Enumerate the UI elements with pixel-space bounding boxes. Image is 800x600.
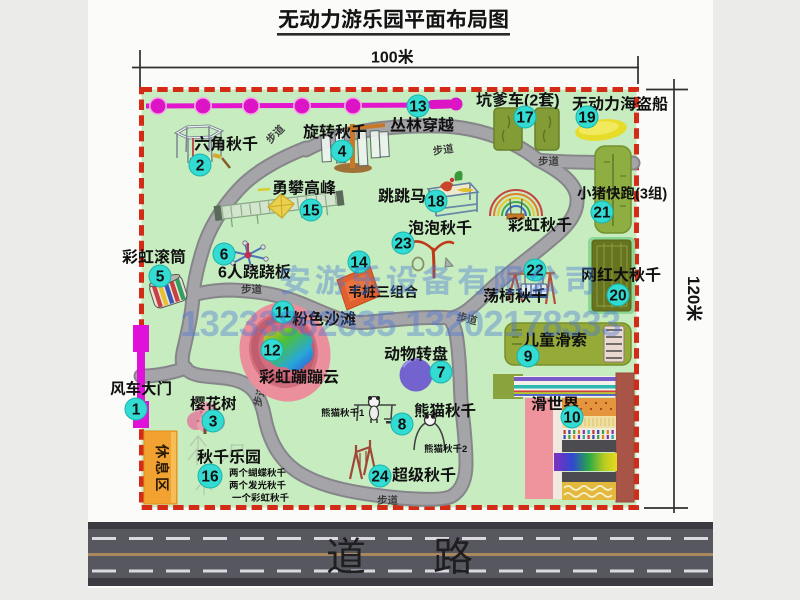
svg-text:24: 24 (371, 469, 389, 486)
svg-text:100: 100 (371, 50, 398, 67)
svg-text:6: 6 (220, 247, 229, 264)
svg-text:1: 1 (359, 408, 365, 419)
svg-text:10: 10 (563, 410, 580, 427)
svg-text:13: 13 (409, 99, 427, 116)
svg-text:8: 8 (398, 417, 407, 434)
svg-text:16: 16 (201, 469, 219, 486)
svg-text:4: 4 (338, 144, 347, 161)
svg-text:(3: (3 (635, 186, 648, 202)
svg-text:6: 6 (218, 265, 227, 282)
svg-text:15: 15 (302, 203, 320, 220)
svg-text:): ) (554, 93, 559, 110)
svg-text:5: 5 (156, 269, 165, 286)
svg-text:13233862635 13202178333: 13233862635 13202178333 (180, 303, 621, 344)
svg-text:): ) (662, 186, 667, 202)
svg-text:23: 23 (394, 236, 412, 253)
svg-text:12: 12 (263, 343, 280, 360)
svg-text:2: 2 (462, 444, 467, 455)
svg-text:2: 2 (196, 158, 205, 175)
svg-text:19: 19 (578, 110, 596, 127)
svg-text:20: 20 (609, 288, 626, 305)
svg-text:17: 17 (516, 110, 533, 127)
svg-text:7: 7 (437, 365, 446, 382)
svg-text:18: 18 (427, 194, 445, 211)
svg-text:1: 1 (132, 402, 141, 419)
svg-text:3: 3 (209, 414, 218, 431)
svg-text:120: 120 (684, 276, 703, 304)
svg-text:9: 9 (524, 349, 533, 366)
svg-text:21: 21 (593, 205, 611, 222)
